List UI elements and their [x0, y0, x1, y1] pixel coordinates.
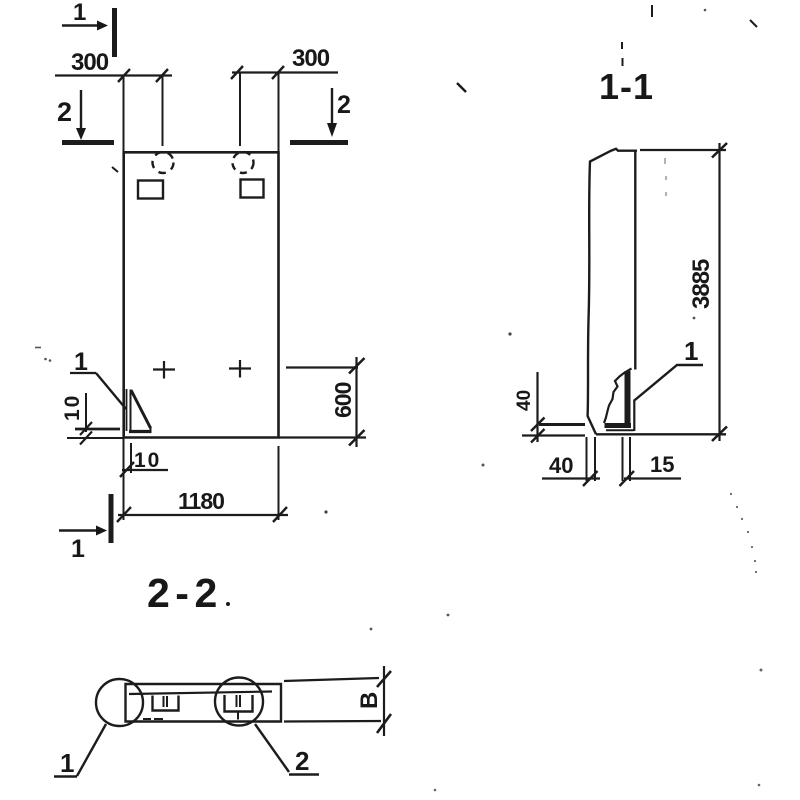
svg-text:15: 15	[650, 452, 674, 477]
svg-text:1: 1	[60, 748, 74, 778]
svg-text:3885: 3885	[688, 259, 715, 309]
svg-text:2: 2	[337, 91, 351, 119]
svg-text:1: 1	[71, 535, 85, 563]
svg-text:2: 2	[57, 97, 72, 127]
svg-text:1-1: 1-1	[599, 66, 654, 107]
svg-text:40: 40	[549, 453, 573, 478]
svg-text:1: 1	[74, 348, 88, 376]
svg-text:600: 600	[330, 382, 356, 418]
svg-text:В: В	[356, 692, 383, 709]
svg-text:2-2: 2-2	[147, 570, 223, 616]
svg-text:1: 1	[684, 336, 698, 366]
svg-text:2: 2	[295, 746, 309, 776]
svg-text:300: 300	[71, 49, 109, 76]
svg-text:10: 10	[134, 449, 161, 472]
svg-text:1180: 1180	[178, 488, 224, 514]
svg-text:10: 10	[61, 394, 84, 421]
svg-text:1: 1	[73, 0, 86, 26]
svg-text:300: 300	[292, 45, 330, 72]
svg-text:40: 40	[514, 390, 535, 411]
